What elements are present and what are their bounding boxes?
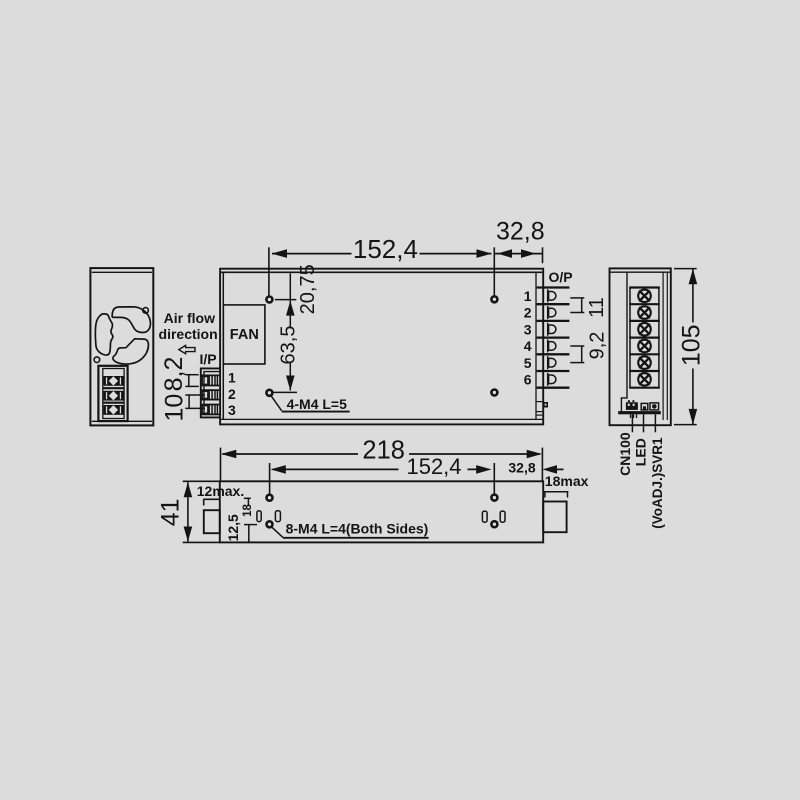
svg-text:Air flow: Air flow [164, 310, 215, 326]
svg-text:6: 6 [524, 372, 532, 388]
svg-text:direction: direction [159, 326, 218, 342]
svg-text:1: 1 [524, 288, 532, 304]
svg-text:FAN: FAN [230, 327, 259, 343]
svg-text:(VoADJ.)SVR1: (VoADJ.)SVR1 [650, 437, 665, 529]
svg-text:O/P: O/P [549, 269, 573, 285]
svg-text:12,5: 12,5 [225, 514, 241, 541]
svg-text:11: 11 [586, 297, 608, 318]
svg-text:32,8: 32,8 [508, 460, 535, 476]
svg-text:3: 3 [228, 402, 236, 418]
svg-text:63,5: 63,5 [278, 326, 300, 365]
svg-text:218: 218 [362, 436, 405, 464]
svg-text:1: 1 [228, 369, 236, 385]
svg-text:32,8: 32,8 [496, 217, 545, 245]
svg-text:8,2: 8,2 [160, 357, 188, 392]
svg-text:3: 3 [524, 321, 532, 337]
svg-text:LED: LED [633, 438, 649, 466]
svg-text:12max.: 12max. [197, 483, 244, 499]
svg-text:105: 105 [677, 324, 705, 366]
svg-text:41: 41 [157, 498, 185, 526]
svg-text:18max: 18max [545, 473, 589, 489]
svg-text:20,75: 20,75 [297, 264, 319, 314]
svg-text:8-M4 L=4(Both Sides): 8-M4 L=4(Both Sides) [286, 520, 429, 536]
svg-text:18: 18 [242, 504, 254, 517]
svg-text:152,4: 152,4 [353, 234, 418, 264]
svg-text:4-M4 L=5: 4-M4 L=5 [287, 396, 348, 412]
svg-text:152,4: 152,4 [406, 454, 461, 479]
svg-text:I/P: I/P [199, 351, 216, 367]
svg-text:2: 2 [228, 386, 236, 402]
svg-text:9,2: 9,2 [586, 332, 608, 360]
svg-text:2: 2 [524, 305, 532, 321]
svg-text:10: 10 [161, 394, 189, 422]
svg-text:5: 5 [524, 355, 532, 371]
svg-text:CN100: CN100 [617, 432, 633, 476]
svg-text:4: 4 [524, 338, 532, 354]
